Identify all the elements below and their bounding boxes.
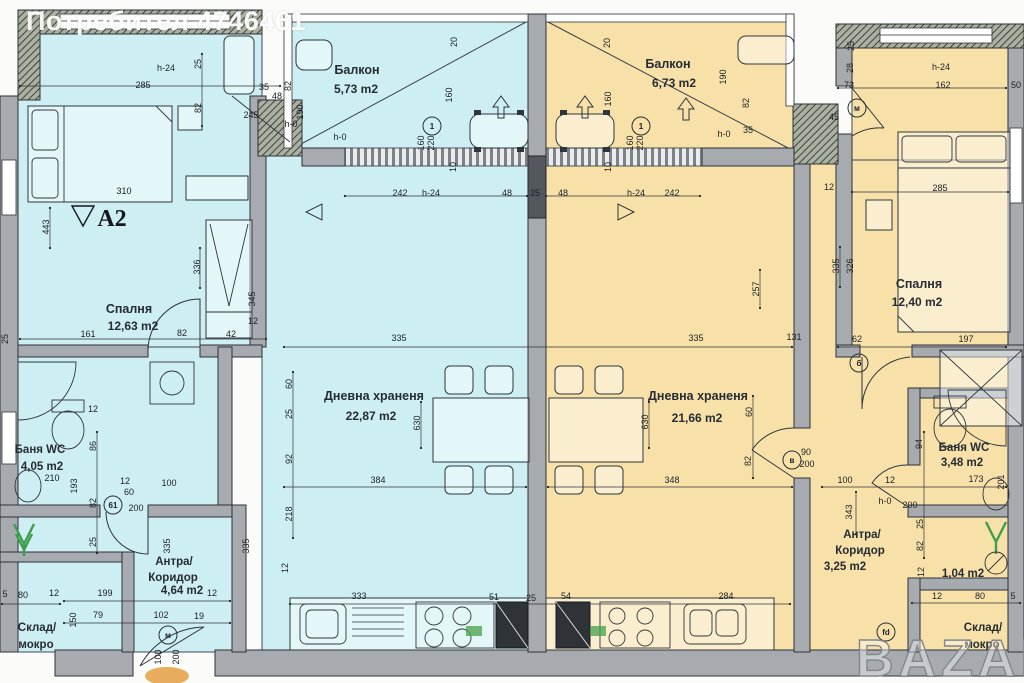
window-left-edge-b — [2, 412, 16, 464]
nightstand-right — [866, 200, 892, 230]
dimension-label: 86 — [88, 441, 98, 451]
dimension-label: 200 — [171, 649, 181, 664]
label-bedroom-left-name: Спалня — [106, 302, 152, 316]
label-balcony-left-area: 5,73 m2 — [334, 82, 378, 96]
label-bath-right-name: Баня WC — [939, 442, 990, 454]
user-watermark: Потребител 4746461 — [26, 6, 306, 37]
dimension-label: 310 — [116, 186, 131, 196]
dimension-label: 257 — [751, 281, 761, 296]
radiator-left — [470, 114, 528, 148]
cabinet-bedroom-left — [224, 36, 254, 94]
dimension-label: 48 — [272, 91, 282, 101]
dimension-label: 25 — [0, 334, 10, 344]
wall-bedroom-bottom-left-a — [18, 345, 148, 357]
dimension-label: 12 — [824, 182, 834, 192]
label-hall-right-area: 3,25 m2 — [824, 561, 866, 573]
dimension-label: 25 — [284, 409, 294, 419]
dimension-label: 90 — [801, 447, 811, 457]
label-hall-right-name2: Коридор — [835, 545, 885, 557]
dimension-label: 25 — [526, 593, 536, 603]
label-storage-left-name2: мокро — [18, 639, 53, 651]
label-living-right-area: 21,66 m2 — [672, 411, 723, 425]
chair — [445, 366, 473, 394]
dimension-label: 100 — [837, 475, 852, 485]
dimension-label: 45 — [829, 112, 839, 122]
window-balcony-door-left — [345, 148, 528, 166]
dimension-label: 82 — [743, 456, 753, 466]
dimension-label: 245 — [243, 110, 258, 120]
dimension-label: 82 — [915, 541, 925, 551]
wall-bath-right-bottom — [908, 505, 1008, 517]
dimension-label: 160 — [625, 135, 635, 150]
label-balcony-right-name: Балкон — [645, 57, 690, 71]
label-bedroom-right-area: 12,40 m2 — [892, 295, 943, 309]
dimension-label: 10 — [603, 162, 613, 172]
label-balcony-left-name: Балкон — [334, 63, 379, 77]
dimension-label: h-24 — [627, 188, 645, 198]
dimension-label: 333 — [351, 591, 366, 601]
marker-label: 1 — [639, 122, 644, 131]
dimension-label: 25 — [530, 188, 540, 198]
dimension-label: 19 — [194, 611, 204, 621]
label-storage-left-name1: Склад/ — [18, 622, 57, 634]
dimension-label: 54 — [561, 591, 571, 601]
wall-threshold-left — [302, 148, 345, 166]
dimension-label: 60 — [744, 407, 754, 417]
dimension-label: 51 — [489, 592, 499, 602]
dimension-label: 82 — [88, 498, 98, 508]
dresser-left — [186, 176, 248, 200]
radiator-balcony-left — [296, 40, 332, 70]
chair — [595, 466, 623, 494]
radiator-right — [556, 114, 614, 148]
dimension-label: 35 — [743, 125, 753, 135]
unit-right-region — [546, 20, 1008, 652]
dimension-label: 12 — [248, 316, 258, 326]
dimension-label: 335 — [241, 538, 251, 553]
label-storage-right-area: 1,04 m2 — [942, 568, 984, 580]
dimension-label: 160 — [444, 87, 454, 102]
dimension-label: h-24 — [422, 188, 440, 198]
dimension-label: 82 — [177, 328, 187, 338]
label-hall-left-area: 4,64 m2 — [161, 585, 203, 597]
label-hall-left-name1: Антра/ — [155, 556, 193, 568]
label-bath-right-area: 3,48 m2 — [941, 457, 983, 469]
label-bath-left-area: 4,05 m2 — [21, 461, 63, 473]
wall-corridor-right-left — [232, 505, 246, 652]
dimension-label: 5 — [2, 589, 7, 599]
dimension-label: 173 — [968, 474, 983, 484]
dimension-label: 60 — [284, 379, 294, 389]
dimension-label: 42 — [226, 329, 236, 339]
dimension-label: 12 — [916, 567, 926, 577]
chair — [595, 366, 623, 394]
dimension-label: h-24 — [157, 63, 175, 73]
dimension-label: 50 — [1011, 80, 1021, 90]
dimension-label: 200 — [799, 459, 814, 469]
dimension-label: 48 — [558, 188, 568, 198]
label-balcony-right-area: 6,73 m2 — [652, 76, 696, 90]
dimension-label: 242 — [664, 188, 679, 198]
dimension-label: 285 — [932, 183, 947, 193]
label-living-right-name: Дневна храненя — [648, 389, 748, 403]
wall-party-dark-segment — [528, 156, 546, 218]
dimension-label: h-0 — [284, 119, 297, 129]
dimension-label: 12 — [932, 591, 942, 601]
bed-left — [28, 106, 172, 202]
dimension-label: 100 — [161, 478, 176, 488]
dimension-label: 80 — [18, 590, 28, 600]
label-living-left-name: Дневна храненя — [324, 389, 424, 403]
dimension-label: 220 — [635, 135, 645, 150]
floorplan-drawing: 285h-242582352454882190h-0h-016020160220… — [0, 0, 1024, 683]
dimension-label: 60 — [124, 487, 134, 497]
wall-bath-bottom-left-b — [148, 505, 232, 517]
chair — [485, 466, 513, 494]
radiator-balcony-right — [738, 36, 794, 64]
dimension-label: 200 — [902, 500, 917, 510]
label-bath-left-name: Баня WC — [15, 444, 66, 456]
dimension-label: 345 — [247, 291, 257, 306]
dimension-label: 25 — [88, 537, 98, 547]
wall-storage-right-left — [122, 552, 134, 652]
dimension-label: 285 — [135, 80, 150, 90]
dimension-label: 443 — [41, 219, 51, 234]
dimension-label: 10 — [448, 162, 458, 172]
dimension-label: 160 — [416, 135, 426, 150]
marker-label: 1 — [430, 122, 435, 131]
wall-storage-top-left — [0, 552, 128, 562]
dimension-label: 12 — [885, 475, 895, 485]
dimension-label: 82 — [193, 103, 203, 113]
label-living-left-area: 22,87 m2 — [346, 409, 397, 423]
dimension-label: 94 — [914, 439, 924, 449]
kitchen-counter-left — [290, 598, 528, 650]
dimension-label: 190 — [718, 69, 728, 84]
dimension-label: h-0 — [717, 129, 730, 139]
counter-accent — [590, 626, 606, 636]
wall-living-right-b — [794, 478, 810, 652]
dimension-label: 200 — [128, 503, 143, 513]
dimension-label: 384 — [370, 475, 385, 485]
wall-bottom-left — [55, 650, 133, 676]
dimension-label: 160 — [603, 91, 613, 106]
dimension-label: 326 — [845, 258, 855, 273]
wall-bath-bottom-left-a — [0, 505, 100, 517]
dimension-label: 150 — [68, 612, 78, 627]
dimension-label: 12 — [49, 588, 59, 598]
dimension-label: 25 — [846, 41, 856, 51]
dimension-label: 630 — [412, 415, 422, 430]
dimension-label: 25 — [193, 59, 203, 69]
marker-label: в — [790, 456, 795, 465]
label-hall-left-name2: Коридор — [148, 572, 198, 584]
dimension-label: 20 — [602, 38, 612, 48]
dimension-label: 284 — [718, 591, 733, 601]
window-balcony-door-right — [546, 148, 702, 166]
dimension-label: 161 — [80, 329, 95, 339]
dimension-label: h-0 — [878, 496, 891, 506]
dimension-label: 5 — [1010, 591, 1015, 601]
wall-bath-right-left — [218, 347, 232, 505]
dimension-label: 131 — [786, 332, 801, 342]
dimension-label: 348 — [664, 475, 679, 485]
window-right-edge — [1010, 128, 1022, 203]
marker-label: 61 — [109, 501, 118, 510]
label-hall-right-name1: Антра/ — [843, 529, 881, 541]
floorplan-canvas: 285h-242582352454882190h-0h-016020160220… — [0, 0, 1024, 683]
dimension-label: 35 — [259, 82, 269, 92]
dimension-label: 162 — [935, 80, 950, 90]
dimension-label: 12 — [88, 404, 98, 414]
dimension-label: 92 — [284, 454, 294, 464]
dimension-label: 12 — [280, 563, 290, 573]
dimension-label: 100 — [153, 649, 163, 664]
railing-balcony-right-top — [546, 14, 794, 22]
dimension-label: 197 — [958, 334, 973, 344]
dimension-label: 79 — [93, 610, 103, 620]
dimension-label: h-0 — [333, 132, 346, 142]
dimension-label: 220 — [426, 135, 436, 150]
dimension-label: 335 — [162, 538, 172, 553]
dimension-label: 80 — [975, 591, 985, 601]
wall-threshold-right — [702, 148, 794, 166]
dimension-label: 335 — [831, 258, 841, 273]
dimension-label: 102 — [153, 610, 168, 620]
window-left-edge-a — [2, 160, 16, 215]
wardrobe-left — [206, 220, 252, 312]
chair — [445, 466, 473, 494]
dimension-label: 28 — [845, 63, 855, 73]
counter-accent — [466, 626, 482, 636]
dimension-label: 190 — [295, 104, 305, 119]
chair — [555, 366, 583, 394]
dimension-label: 218 — [284, 506, 294, 521]
dimension-label: 210 — [44, 473, 59, 483]
dimension-label: 335 — [688, 333, 703, 343]
marker-label: м — [854, 104, 860, 113]
dimension-label: 62 — [852, 334, 862, 344]
wall-bedroom-right-left-b — [836, 134, 852, 348]
label-bedroom-right-name: Спалня — [896, 277, 942, 291]
chair — [555, 466, 583, 494]
wall-party — [528, 14, 546, 652]
dimension-label: 48 — [502, 188, 512, 198]
label-bedroom-left-area: 12,63 m2 — [108, 319, 159, 333]
dimension-label: 193 — [69, 478, 79, 493]
marker-label: м — [165, 631, 171, 640]
dimension-label: 82 — [741, 98, 751, 108]
railing-balcony-left-top — [284, 14, 528, 22]
dimension-label: 82 — [283, 81, 293, 91]
dimension-label: 12 — [120, 476, 130, 486]
dimension-label: 201 — [996, 474, 1006, 489]
marker-label: б — [857, 359, 862, 368]
dimension-label: 242 — [392, 188, 407, 198]
dimension-label: 199 — [97, 588, 112, 598]
dining-table-right — [549, 398, 643, 462]
wall-living-right-a — [794, 160, 810, 428]
dimension-label: 12 — [207, 588, 217, 598]
wall-bath-right-left-a — [908, 388, 920, 465]
brand-watermark: BAZAR — [856, 630, 1024, 683]
dimension-label: 20 — [449, 37, 459, 47]
dimension-label: 25 — [915, 519, 925, 529]
dimension-label: 336 — [192, 259, 202, 274]
dimension-label: 335 — [391, 333, 406, 343]
dimension-label: 343 — [844, 504, 854, 519]
dimension-label: h-24 — [932, 62, 950, 72]
dimension-label: 630 — [640, 414, 650, 429]
chair — [485, 366, 513, 394]
dining-table-left — [433, 398, 529, 462]
unit-label: А2 — [97, 206, 126, 232]
dimension-label: 73 — [844, 80, 854, 90]
window-bedroom-right — [880, 28, 992, 43]
